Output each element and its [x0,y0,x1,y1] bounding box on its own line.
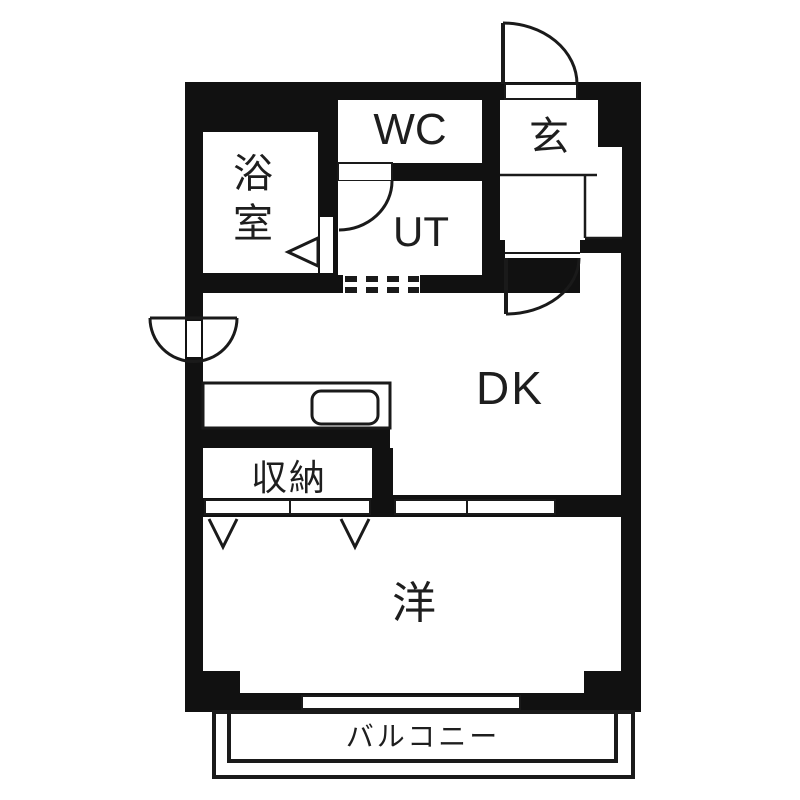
utility-label: UT [351,207,491,257]
bathroom-door-opening [320,217,333,273]
toilet-label: WC [340,104,480,156]
bathroom-label: 浴室 [225,138,273,266]
dk-upper-right-floor [580,253,621,295]
window-to-balcony [302,696,520,709]
wall-storage-divider [372,448,393,498]
dining-kitchen-label: DK [430,362,590,414]
pillar-bottom-left [203,671,240,695]
balcony-label: バルコニー [303,719,543,751]
toilet-door-frame [338,163,392,181]
storage-label: 収納 [209,455,369,495]
wall-below-counter [203,428,390,448]
left-door-opening [187,321,201,357]
entrance-label: 玄 [499,110,599,156]
floorplan-canvas: 浴室 WC UT 玄 DK 収納 洋 バルコニー [0,0,800,800]
storage-sliding-door-track [205,500,370,514]
dk-western-sliding-track [395,500,555,514]
pillar-bottom-right [584,671,621,695]
dk-door-opening [505,238,580,258]
kitchen-sink [312,391,378,424]
entrance-hall-floor [500,175,585,240]
western-room-label: 洋 [334,575,494,623]
front-door-swing-arc [503,23,577,84]
front-door-threshold [505,84,577,99]
entrance-side-nook [585,147,622,238]
